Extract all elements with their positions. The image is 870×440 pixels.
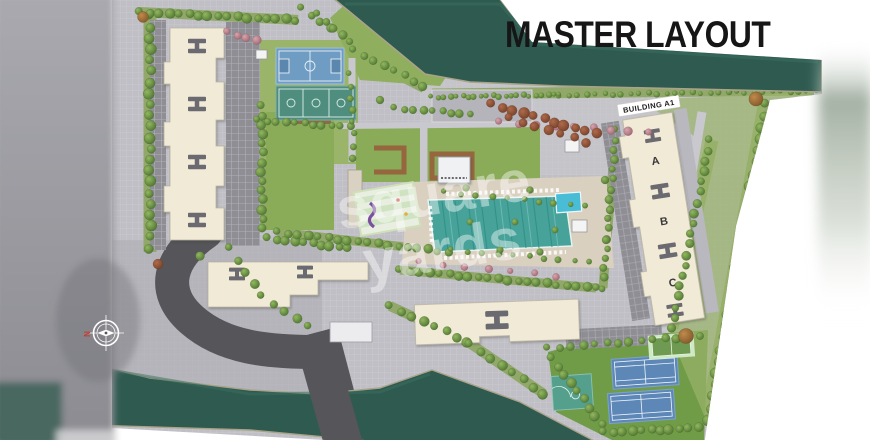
bridge-road [320,360,344,440]
annex-building [330,322,372,342]
building-west [164,28,224,240]
page-title: MASTER LAYOUT [505,15,771,56]
compass-north-label: N [83,331,92,337]
master-layout-screenshot: BUILDING A1 A B C [0,0,870,440]
tennis-court-1 [611,355,679,390]
central-lawn [266,112,334,230]
right-edge-gradient [818,40,870,370]
basketball-court-teal [276,86,356,120]
tennis-court-2 [608,389,676,424]
basketball-courts [276,48,356,120]
title-group: MASTER LAYOUT [505,15,771,56]
site-plan-canvas: BUILDING A1 A B C [0,0,870,440]
kids-pool [555,192,581,213]
